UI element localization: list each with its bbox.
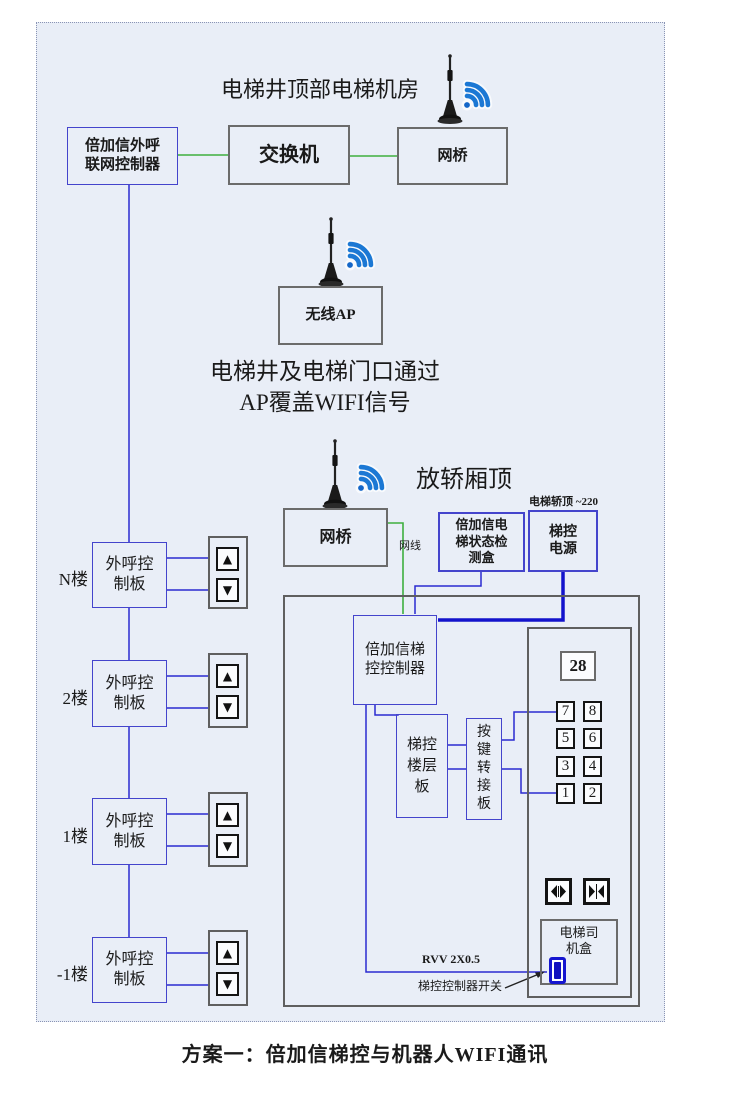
outcall-network-controller-label: 倍加信外呼联网控制器 <box>83 137 163 175</box>
key-adapter-board-box: 按键转接板 <box>466 718 502 820</box>
elevator-driver-box-label: 电梯司机盒 <box>557 925 601 958</box>
car-top-power-note: 电梯轿顶 ~220 <box>529 493 598 509</box>
call-down-button: ▼ <box>216 834 239 858</box>
ethernet-cable-label: 网线 <box>399 537 421 553</box>
call-down-button: ▼ <box>216 695 239 719</box>
floor-key-5: 5 <box>556 728 575 749</box>
ap-coverage-note-line1: 电梯井及电梯门口通过 <box>190 352 460 386</box>
outcall-network-controller-box: 倍加信外呼联网控制器 <box>67 127 178 185</box>
key-label: 8 <box>589 704 597 719</box>
floor-board-label: 梯控楼层板 <box>407 735 438 798</box>
controller-switch <box>549 957 566 984</box>
floor-label-1: 1楼 <box>28 822 88 847</box>
door-close-button <box>583 878 610 905</box>
machine-room-title: 电梯井顶部电梯机房 <box>205 72 435 104</box>
outcall-board-1: 外呼控制板 <box>92 798 167 865</box>
floor-board-box: 梯控楼层板 <box>396 714 448 818</box>
floor-label-n: N楼 <box>28 565 88 590</box>
key-label: 6 <box>589 731 597 746</box>
floor-display: 28 <box>560 651 596 681</box>
network-bridge-car-label: 网桥 <box>319 528 351 548</box>
outcall-board-label: 外呼控制板 <box>105 674 155 714</box>
up-arrow-icon: ▲ <box>223 809 232 821</box>
diagram-page: 电梯井顶部电梯机房 倍加信外呼联网控制器 交换机 网桥 无线AP 电梯井及电梯门… <box>0 0 730 1096</box>
down-arrow-icon: ▼ <box>223 978 232 990</box>
elevator-status-detector-label: 倍加信电梯状态检测盒 <box>455 517 509 568</box>
network-bridge-top-label: 网桥 <box>437 147 467 166</box>
call-up-button: ▲ <box>216 803 239 827</box>
controller-switch-label: 梯控控制器开关 <box>418 977 502 994</box>
wireless-ap-box: 无线AP <box>278 286 383 345</box>
floor-key-7: 7 <box>556 701 575 722</box>
outcall-board-label: 外呼控制板 <box>105 950 155 990</box>
floor-key-6: 6 <box>583 728 602 749</box>
key-label: 3 <box>562 759 570 774</box>
network-switch-label: 交换机 <box>259 143 319 168</box>
key-label: 7 <box>562 704 570 719</box>
floor-label-2: 2楼 <box>28 684 88 709</box>
key-adapter-board-label: 按键转接板 <box>477 724 492 815</box>
elevator-controller-box: 倍加信梯控控制器 <box>353 615 437 705</box>
door-open-icon <box>549 882 568 901</box>
floor-key-8: 8 <box>583 701 602 722</box>
outcall-board-minus1: 外呼控制板 <box>92 937 167 1003</box>
call-up-button: ▲ <box>216 547 239 571</box>
floor-key-3: 3 <box>556 756 575 777</box>
elevator-power-box: 梯控电源 <box>528 510 598 572</box>
call-down-button: ▼ <box>216 972 239 996</box>
key-label: 5 <box>562 731 570 746</box>
door-close-icon <box>587 882 606 901</box>
wireless-ap-label: 无线AP <box>306 306 356 325</box>
floor-key-4: 4 <box>583 756 602 777</box>
outcall-board-2: 外呼控制板 <box>92 660 167 727</box>
car-top-title: 放轿厢顶 <box>416 459 512 494</box>
door-open-button <box>545 878 572 905</box>
key-label: 4 <box>589 759 597 774</box>
up-arrow-icon: ▲ <box>223 670 232 682</box>
outcall-board-label: 外呼控制板 <box>105 555 155 595</box>
down-arrow-icon: ▼ <box>223 584 232 596</box>
controller-switch-toggle <box>554 962 561 979</box>
network-bridge-car-box: 网桥 <box>283 508 388 567</box>
key-label: 2 <box>589 786 597 801</box>
floor-display-value: 28 <box>570 655 587 676</box>
floor-key-2: 2 <box>583 783 602 804</box>
outcall-board-label: 外呼控制板 <box>105 812 155 852</box>
up-arrow-icon: ▲ <box>223 553 232 565</box>
call-up-button: ▲ <box>216 664 239 688</box>
floor-key-1: 1 <box>556 783 575 804</box>
outcall-board-n: 外呼控制板 <box>92 542 167 608</box>
network-switch-box: 交换机 <box>228 125 350 185</box>
elevator-power-label: 梯控电源 <box>547 524 579 559</box>
floor-label-minus1: -1楼 <box>28 960 88 985</box>
down-arrow-icon: ▼ <box>223 701 232 713</box>
call-down-button: ▼ <box>216 578 239 602</box>
elevator-controller-label: 倍加信梯控控制器 <box>364 641 426 679</box>
scheme-caption: 方案一：倍加信梯控与机器人WIFI通讯 <box>0 1038 730 1067</box>
rvv-cable-label: RVV 2X0.5 <box>410 952 480 967</box>
call-up-button: ▲ <box>216 941 239 965</box>
elevator-status-detector-box: 倍加信电梯状态检测盒 <box>438 512 525 572</box>
network-bridge-top-box: 网桥 <box>397 127 508 185</box>
key-label: 1 <box>562 786 570 801</box>
down-arrow-icon: ▼ <box>223 840 232 852</box>
ap-coverage-note-line2: AP覆盖WIFI信号 <box>190 383 460 417</box>
up-arrow-icon: ▲ <box>223 947 232 959</box>
